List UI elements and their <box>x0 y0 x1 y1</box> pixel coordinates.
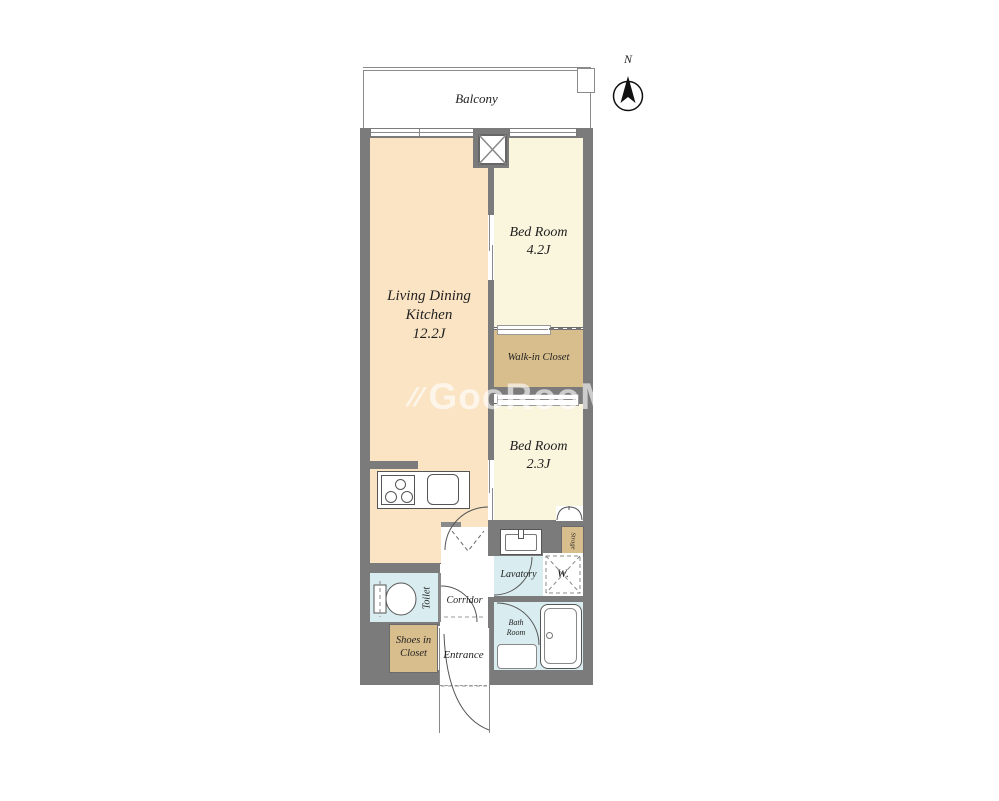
vanity-sink <box>500 529 542 555</box>
shoes-closet-label: Shoes in Closet <box>390 634 437 660</box>
ldk-label: Living Dining Kitchen 12.2J <box>370 287 488 344</box>
compass-rose-icon <box>606 67 650 117</box>
washer-label: W. <box>543 566 583 580</box>
storage-label: Strage <box>569 533 576 550</box>
compass: N <box>606 52 650 118</box>
closet-folding-box <box>556 506 583 521</box>
wall-bedroom23-bottom <box>488 520 583 527</box>
floor-plan: Balcony <box>0 0 999 801</box>
wall-left <box>360 128 370 632</box>
bedroom42-label: Bed Room 4.2J <box>494 224 583 260</box>
watermark-logo-icon: // <box>405 382 426 413</box>
bathroom-label: Bath Room <box>497 618 535 638</box>
bathtub <box>540 604 582 669</box>
shower-pan <box>497 644 537 669</box>
wall-bottom-left-block <box>360 622 390 685</box>
lavatory-label: Lavatory <box>494 569 543 581</box>
watermark: // GooRooM <box>408 376 612 418</box>
wall-lavatory-bottom <box>494 596 583 602</box>
balcony-outline-top2 <box>363 70 591 71</box>
wall-ldk-bottom <box>360 563 440 573</box>
entrance-label: Entrance <box>439 649 488 662</box>
window-ldk <box>370 129 474 136</box>
bedroom23-label: Bed Room 2.3J <box>494 438 583 474</box>
compass-north-label: N <box>606 52 650 66</box>
corridor-label: Corridor <box>441 595 488 607</box>
wall-kitchen-stub <box>365 461 418 469</box>
entrance-channel <box>439 628 490 733</box>
stove <box>381 475 415 505</box>
watermark-text: GooRooM <box>428 376 612 418</box>
balcony-partition <box>577 68 595 93</box>
window-bedroom42 <box>509 129 577 136</box>
toilet-label: Toilet <box>422 587 433 609</box>
balcony-label: Balcony <box>363 91 590 107</box>
wic-label: Walk-in Closet <box>494 352 583 365</box>
kitchen-sink <box>427 474 459 505</box>
sliding-door-wic <box>497 325 551 335</box>
balcony-outline-top <box>363 67 591 68</box>
